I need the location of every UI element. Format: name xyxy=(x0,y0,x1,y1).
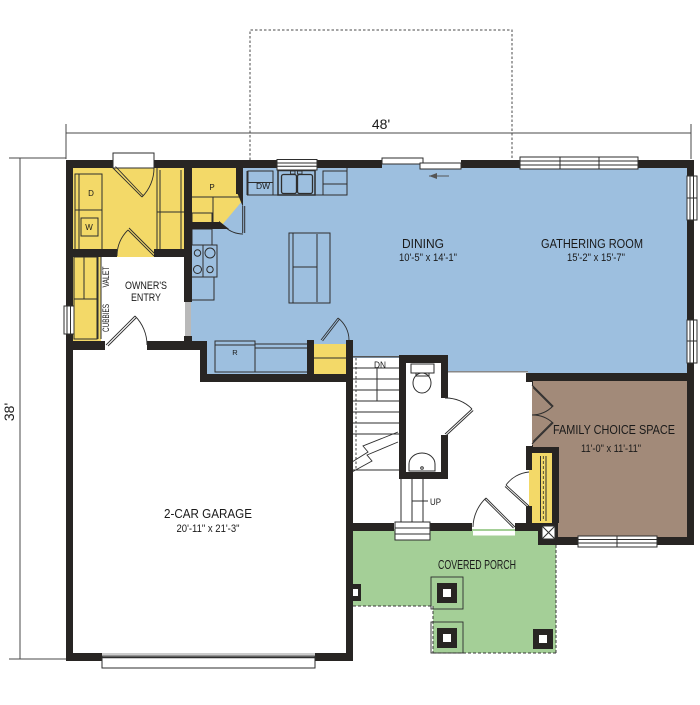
svg-text:P: P xyxy=(209,183,214,192)
svg-text:CUBBIES: CUBBIES xyxy=(101,304,111,332)
svg-text:15'-2" x 15'-7": 15'-2" x 15'-7" xyxy=(567,252,625,264)
svg-text:COVERED PORCH: COVERED PORCH xyxy=(438,558,516,572)
svg-text:R: R xyxy=(232,348,238,357)
svg-text:11'-0" x 11'-11": 11'-0" x 11'-11" xyxy=(581,443,641,455)
svg-text:D: D xyxy=(88,189,94,198)
svg-text:DINING: DINING xyxy=(402,236,444,251)
svg-text:ENTRY: ENTRY xyxy=(131,292,162,304)
svg-text:W: W xyxy=(85,223,93,232)
svg-text:48': 48' xyxy=(372,116,390,132)
svg-text:OWNER'S: OWNER'S xyxy=(125,280,167,292)
svg-text:UP: UP xyxy=(430,497,441,508)
svg-text:38': 38' xyxy=(1,403,17,421)
svg-text:DW: DW xyxy=(256,182,270,191)
svg-text:2-CAR GARAGE: 2-CAR GARAGE xyxy=(164,506,252,521)
svg-text:DN: DN xyxy=(374,360,386,371)
svg-text:GATHERING ROOM: GATHERING ROOM xyxy=(541,236,643,251)
svg-text:10'-5" x 14'-1": 10'-5" x 14'-1" xyxy=(399,252,457,264)
svg-text:FAMILY CHOICE SPACE: FAMILY CHOICE SPACE xyxy=(553,422,675,437)
svg-text:20'-11" x 21'-3": 20'-11" x 21'-3" xyxy=(177,523,240,535)
svg-text:VALET: VALET xyxy=(101,266,111,287)
